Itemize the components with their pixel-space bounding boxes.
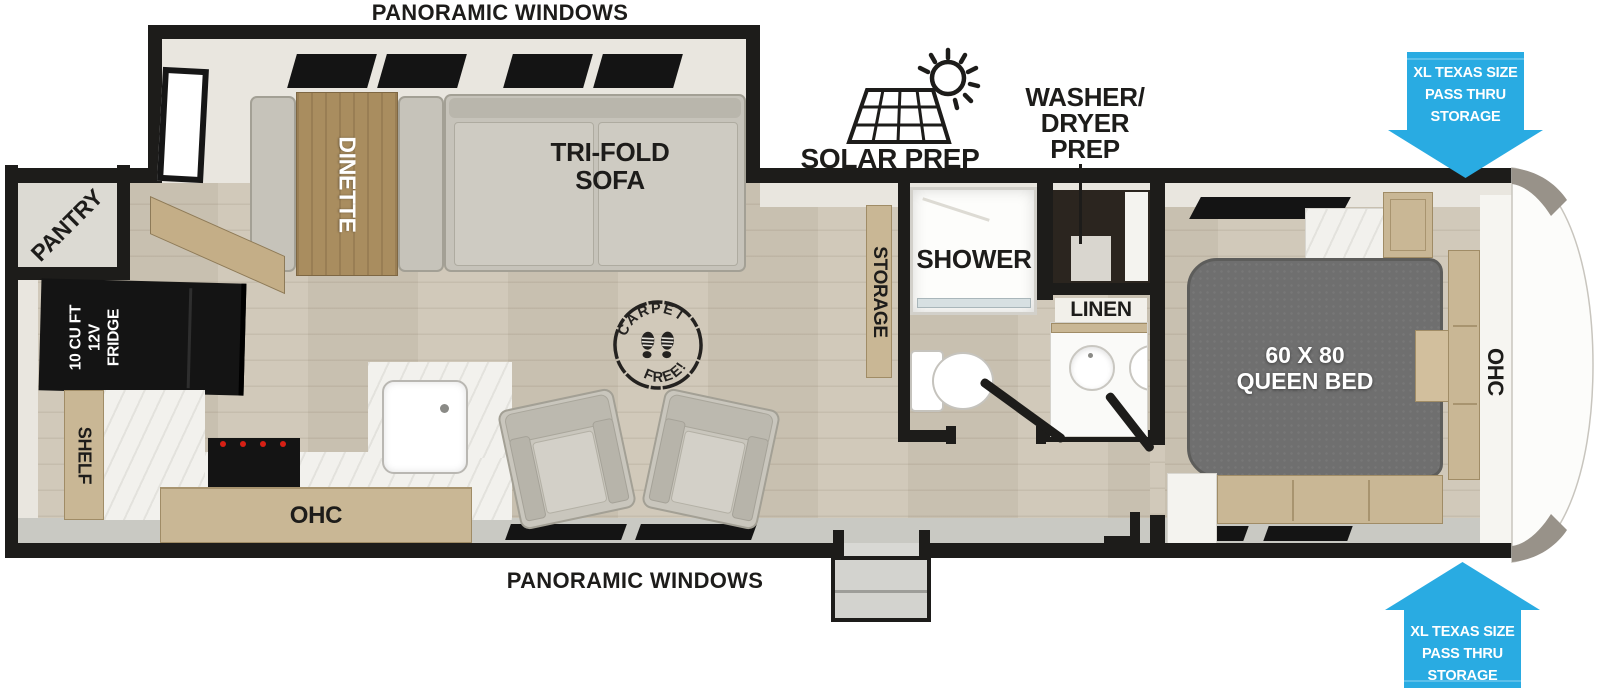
bed-label-line2: QUEEN BED (1237, 368, 1374, 394)
dinette-label: DINETTE (333, 136, 360, 232)
vanity-faucet (1088, 353, 1093, 358)
linen-label: LINEN (1070, 298, 1132, 322)
panoramic-windows-label-top: PANORAMIC WINDOWS (300, 0, 700, 26)
fridge-door-seam (187, 288, 193, 388)
bedroom-cabinet-bottom-left (1167, 473, 1217, 545)
cooktop-knob-1 (220, 441, 226, 447)
bed-label-wrap: 60 X 80 QUEEN BED (1205, 340, 1405, 396)
pass-thru-bottom-line2: PASS THRU (1385, 646, 1540, 662)
slideout-window-pane-4 (593, 54, 683, 88)
exterior-wall-top-left-segment (5, 168, 148, 183)
bedroom-dresser (1217, 475, 1443, 524)
accent-chair-left (497, 387, 638, 531)
slideout-wall-top (148, 25, 760, 39)
fridge-label: 10 CU FT 12V FRIDGE (66, 304, 123, 370)
dinette-bench-right (398, 96, 444, 272)
bedroom-window-2 (1263, 526, 1352, 541)
cooktop (208, 438, 300, 488)
shelf-label: SHELF (74, 426, 95, 484)
bedside-table (1415, 330, 1451, 402)
solar-prep-label: SOLAR PREP (795, 143, 985, 175)
entry-step (831, 556, 931, 622)
washer-dryer-prep-label: WASHER/ DRYER PREP (1005, 84, 1165, 162)
washer-dryer-leader-line (1079, 164, 1082, 244)
bed-label: 60 X 80 QUEEN BED (1237, 342, 1374, 394)
pass-thru-arrow-top: XL TEXAS SIZE PASS THRU STORAGE (1388, 52, 1543, 178)
pantry-label: PANTRY (26, 184, 109, 267)
bed-label-line1: 60 X 80 (1237, 342, 1374, 368)
pantry-room: PANTRY (18, 183, 117, 267)
bathroom-wall-bottom-left (898, 430, 950, 442)
fridge-label-line2: 12V (85, 304, 104, 370)
trifold-sofa-label: TRI-FOLD SOFA (520, 138, 700, 194)
washer-dryer-line2: DRYER (1005, 110, 1165, 136)
slideout-window-pane-3 (503, 54, 593, 88)
entry-door-jamb-left (833, 530, 844, 558)
slideout-window-pane-2 (377, 54, 467, 88)
pass-thru-top-line3: STORAGE (1388, 109, 1543, 125)
entry-door-jamb-right (919, 530, 930, 558)
pass-thru-bottom-line3: STORAGE (1385, 668, 1540, 684)
kitchen-ohc-label: OHC (290, 502, 342, 530)
cooktop-knob-3 (260, 441, 266, 447)
trifold-sofa-label-line2: SOFA (520, 166, 700, 194)
dinette-label-wrap: DINETTE (296, 92, 398, 276)
trifold-sofa-label-line1: TRI-FOLD (520, 138, 700, 166)
pass-thru-bottom-line1: XL TEXAS SIZE (1385, 624, 1540, 640)
slideout-side-window (157, 67, 209, 183)
shelf: SHELF (64, 390, 104, 520)
washer-dryer-line1: WASHER/ (1005, 84, 1165, 110)
fridge-label-line3: FRIDGE (104, 304, 123, 370)
closet-interior-panel (1125, 192, 1148, 281)
wardrobe-handle-line-2 (1453, 403, 1477, 405)
kitchen-sink (382, 380, 468, 474)
vanity-sink-bowl-2 (1129, 345, 1148, 391)
slideout-window-pane-1 (287, 54, 377, 88)
shower-label-wrap: SHOWER (908, 244, 1040, 274)
bedroom-door-opening (1150, 445, 1165, 515)
exterior-wall-bottom-right-segment (920, 543, 1512, 558)
accent-chair-right (641, 387, 782, 531)
cooktop-knob-4 (280, 441, 286, 447)
exterior-wall-bottom-left-segment (5, 543, 843, 558)
linen-label-wrap: LINEN (1055, 298, 1147, 322)
bootprint-icon (640, 331, 654, 358)
bedroom-wardrobe-side (1448, 250, 1480, 480)
panoramic-windows-label-bottom: PANORAMIC WINDOWS (435, 568, 835, 594)
closet-door-gap (1071, 236, 1111, 281)
sink-faucet (440, 404, 449, 413)
pass-thru-top-line1: XL TEXAS SIZE (1388, 65, 1543, 81)
solar-panel-icon (835, 46, 985, 148)
washer-dryer-line3: PREP (1005, 136, 1165, 162)
exterior-wall-left (5, 165, 18, 558)
shower-label: SHOWER (916, 244, 1031, 275)
pass-thru-arrow-bottom: XL TEXAS SIZE PASS THRU STORAGE (1385, 562, 1540, 688)
vanity-backsplash (1051, 323, 1148, 333)
wardrobe-handle-line-1 (1453, 325, 1477, 327)
bathroom-wall-left (898, 183, 910, 442)
cooktop-knob-2 (240, 441, 246, 447)
shower-glass-door (917, 298, 1031, 308)
fridge-label-wrap: 10 CU FT 12V FRIDGE (40, 281, 150, 393)
sofa-back (449, 98, 741, 118)
wardrobe-door-line (1390, 199, 1426, 251)
rv-floorplan: DINETTE TRI-FOLD SOFA PANTRY 10 CU FT 12… (0, 0, 1600, 691)
bedroom-wardrobe-top (1383, 192, 1433, 258)
pass-thru-top-line2: PASS THRU (1388, 87, 1543, 103)
closet-wall-inner (1037, 183, 1053, 300)
kitchen-ohc: OHC (160, 487, 472, 543)
closet-wall-bottom (1053, 283, 1150, 295)
front-cap (1505, 160, 1600, 570)
storage-label: STORAGE (868, 246, 890, 338)
bedroom-counter (1305, 208, 1385, 262)
entry-step-tread-line (835, 590, 927, 593)
fridge-label-line1: 10 CU FT (66, 304, 85, 370)
shower-pan-line (922, 197, 990, 221)
slideout-wall-right (746, 25, 760, 183)
bathroom-door-jamb-left (946, 426, 956, 444)
vanity-sink-bowl (1069, 345, 1115, 391)
dresser-seam-1 (1292, 480, 1294, 521)
bedroom-wall-upper (1150, 183, 1165, 445)
washer-dryer-closet (1053, 190, 1150, 283)
dresser-seam-2 (1368, 480, 1370, 521)
storage-divider: STORAGE (866, 205, 892, 378)
bootprint-icon (660, 331, 674, 358)
